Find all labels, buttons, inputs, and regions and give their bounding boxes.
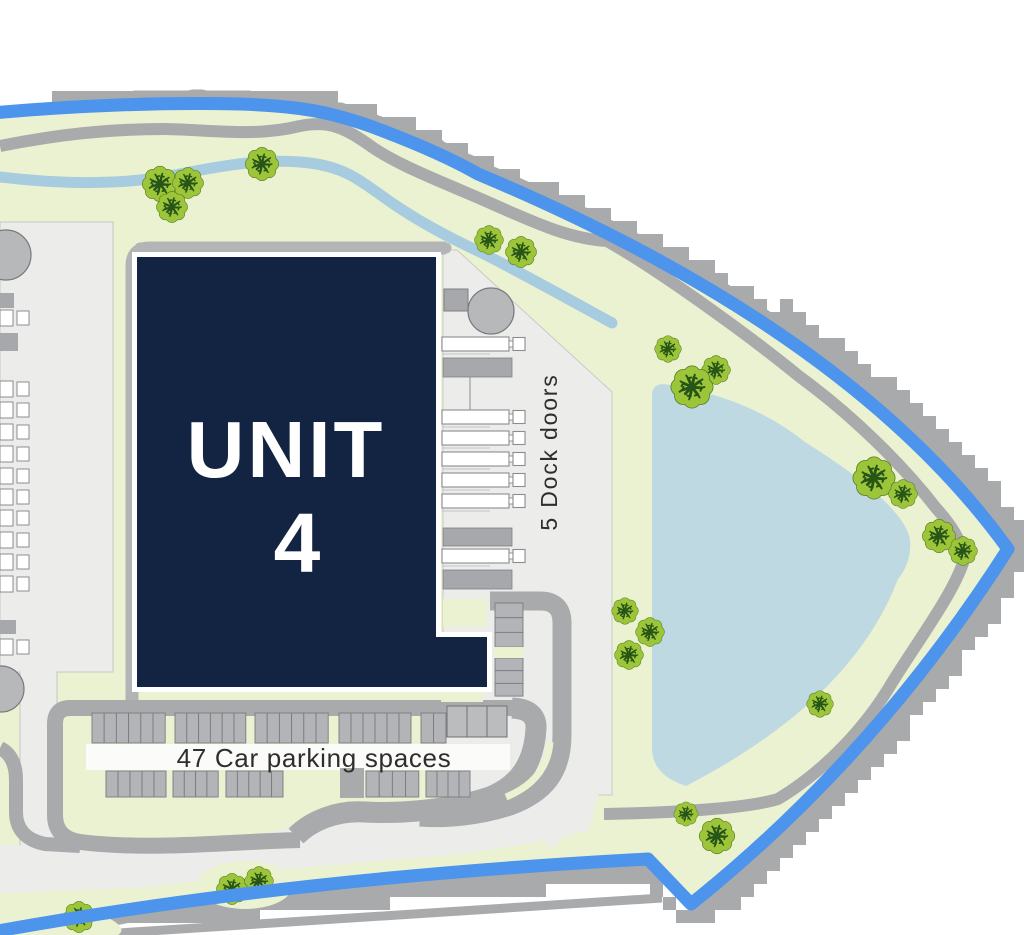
svg-text:47 Car parking spaces: 47 Car parking spaces bbox=[177, 743, 452, 773]
svg-text:5 Dock doors: 5 Dock doors bbox=[536, 373, 562, 530]
svg-text:4: 4 bbox=[274, 496, 321, 590]
svg-text:UNIT: UNIT bbox=[187, 405, 386, 494]
